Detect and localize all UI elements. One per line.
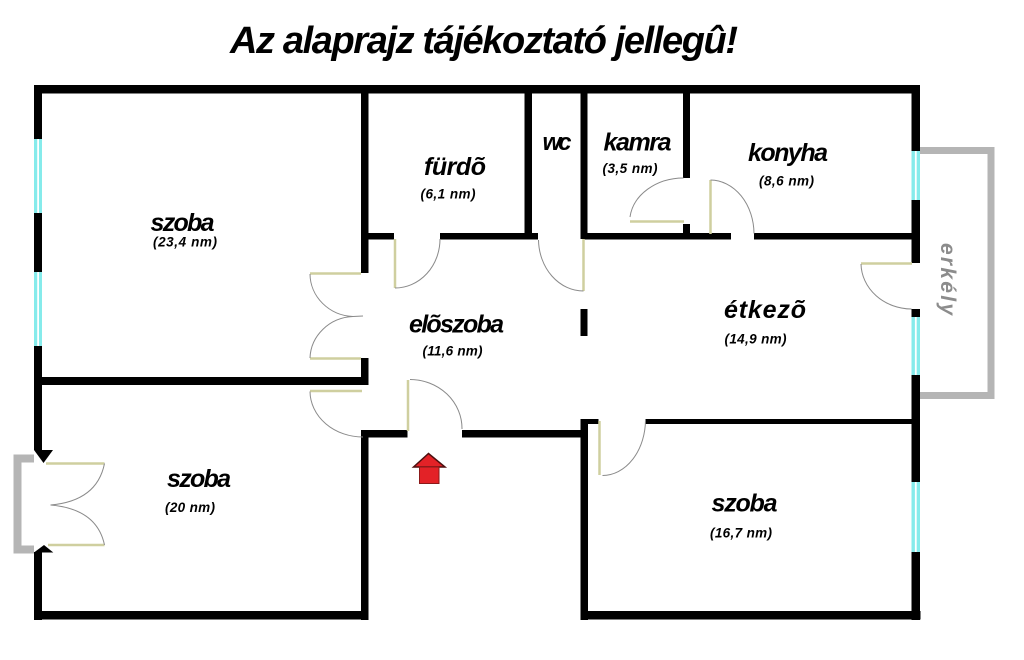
svg-text:(23,4 nm): (23,4 nm): [153, 235, 218, 250]
svg-text:szoba: szoba: [167, 465, 231, 493]
svg-text:(11,6 nm): (11,6 nm): [423, 344, 484, 359]
svg-text:szoba: szoba: [712, 490, 778, 518]
svg-text:fürdõ: fürdõ: [424, 153, 486, 181]
svg-text:szoba: szoba: [151, 209, 215, 237]
svg-text:wc: wc: [543, 129, 572, 156]
svg-text:(14,9 nm): (14,9 nm): [725, 332, 788, 347]
svg-text:(20 nm): (20 nm): [165, 500, 216, 515]
svg-text:(8,6 nm): (8,6 nm): [759, 174, 815, 189]
svg-text:(3,5 nm): (3,5 nm): [603, 161, 659, 176]
svg-text:elõszoba: elõszoba: [409, 311, 504, 339]
svg-text:(16,7 nm): (16,7 nm): [710, 526, 773, 541]
svg-text:kamra: kamra: [604, 129, 672, 157]
svg-text:(6,1 nm): (6,1 nm): [421, 187, 477, 202]
svg-text:étkezõ: étkezõ: [724, 296, 806, 324]
svg-text:konyha: konyha: [748, 139, 828, 167]
svg-text:Az alaprajz tájékoztató jelleg: Az alaprajz tájékoztató jellegû!: [229, 20, 738, 62]
